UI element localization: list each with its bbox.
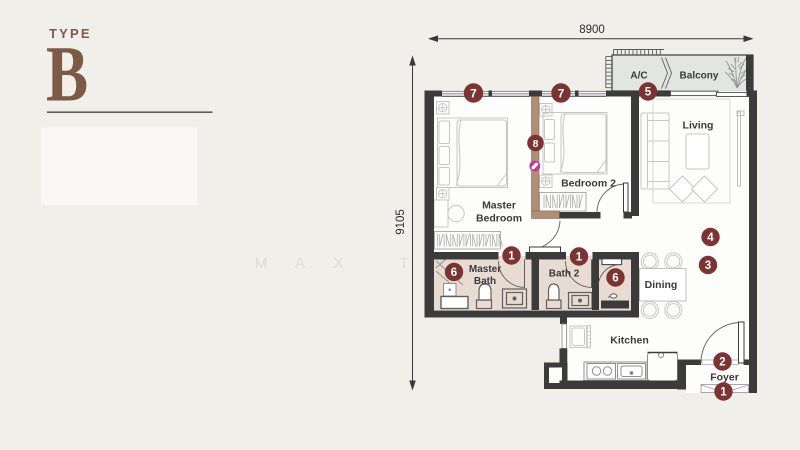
svg-text:2: 2 [719,357,725,369]
svg-text:M: M [255,255,268,272]
svg-text:Bedroom: Bedroom [476,213,522,225]
svg-text:8: 8 [533,138,539,150]
svg-text:1: 1 [720,387,727,399]
svg-text:4: 4 [707,232,714,244]
svg-text:1: 1 [576,252,583,264]
svg-text:X: X [333,255,343,272]
svg-text:Dining: Dining [645,279,678,291]
svg-text:1: 1 [508,251,515,263]
svg-text:6: 6 [451,267,457,279]
svg-text:Master: Master [482,200,516,212]
svg-text:8900: 8900 [579,24,605,36]
svg-text:3: 3 [705,260,711,272]
svg-text:Bath 2: Bath 2 [549,269,580,280]
svg-text:B: B [46,31,88,118]
svg-text:Foyer: Foyer [710,372,739,384]
svg-text:Bedroom 2: Bedroom 2 [561,178,616,190]
svg-text:Kitchen: Kitchen [610,335,649,347]
svg-text:Living: Living [683,120,714,132]
svg-text:Bath: Bath [474,276,496,287]
svg-text:6: 6 [612,273,618,285]
svg-text:A/C: A/C [630,71,647,82]
svg-text:9105: 9105 [395,209,407,235]
svg-text:A: A [295,255,305,272]
svg-text:T: T [399,255,408,272]
svg-text:5: 5 [645,87,652,99]
svg-text:7: 7 [558,86,565,100]
svg-text:7: 7 [470,86,477,100]
svg-text:Balcony: Balcony [680,71,719,82]
svg-text:Master: Master [469,264,501,275]
